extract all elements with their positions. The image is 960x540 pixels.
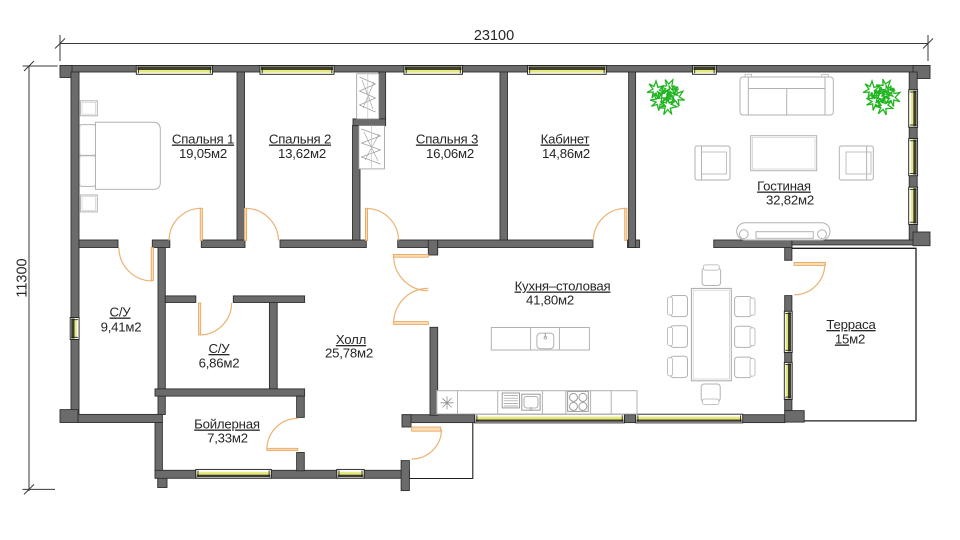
svg-text:6,86м2: 6,86м2: [199, 356, 240, 371]
svg-text:15м2: 15м2: [835, 332, 865, 347]
svg-text:25,78м2: 25,78м2: [325, 346, 373, 361]
svg-text:Терраса: Терраса: [826, 317, 876, 332]
svg-text:9,41м2: 9,41м2: [101, 320, 142, 335]
svg-text:С/У: С/У: [209, 341, 231, 356]
svg-text:Гостиная: Гостиная: [757, 179, 811, 194]
svg-text:Спальня 1: Спальня 1: [172, 132, 234, 147]
svg-text:14,86м2: 14,86м2: [542, 146, 590, 161]
svg-text:Кабинет: Кабинет: [541, 132, 590, 147]
svg-text:19,05м2: 19,05м2: [179, 146, 227, 161]
svg-text:11300: 11300: [15, 258, 31, 297]
svg-text:С/У: С/У: [110, 305, 132, 320]
svg-text:13,62м2: 13,62м2: [278, 146, 326, 161]
svg-text:32,82м2: 32,82м2: [766, 193, 814, 208]
svg-text:Спальня 3: Спальня 3: [416, 132, 478, 147]
svg-text:Бойлерная: Бойлерная: [194, 417, 260, 432]
svg-text:Спальня 2: Спальня 2: [269, 132, 331, 147]
svg-text:Кухня–столовая: Кухня–столовая: [515, 279, 611, 294]
svg-text:23100: 23100: [474, 28, 514, 44]
svg-text:7,33м2: 7,33м2: [207, 431, 248, 446]
svg-text:41,80м2: 41,80м2: [526, 293, 574, 308]
svg-text:16,06м2: 16,06м2: [426, 146, 474, 161]
